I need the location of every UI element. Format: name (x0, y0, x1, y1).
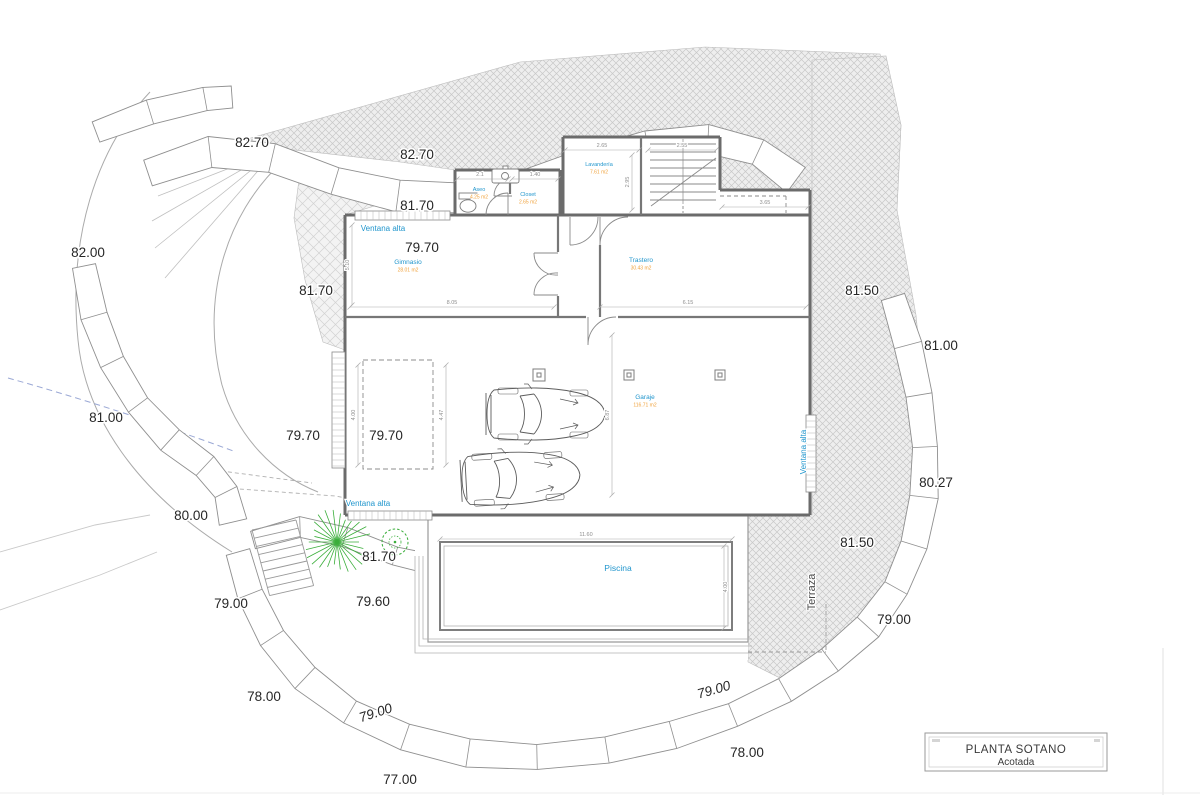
dimension-label: 4.47 (439, 410, 445, 421)
note-terraza: Terraza (806, 573, 818, 611)
room-name-label: Aseo (473, 187, 486, 193)
dimension-label: 4.00 (351, 410, 357, 421)
elevation-label: 82.00 (71, 245, 105, 260)
stone-wall (92, 86, 233, 142)
dimension-label: 6.87 (605, 410, 611, 421)
room-name-label: Closet (520, 192, 536, 198)
elevation-label: 82.70 (235, 135, 269, 150)
elevation-label: 79.70 (369, 428, 403, 443)
dimension-label: 11.60 (579, 532, 592, 538)
elevation-label: 79.60 (356, 594, 390, 609)
high-window-strip (332, 352, 345, 468)
dimension-label: 5.10 (345, 260, 351, 271)
dimension-label: 3.65 (760, 200, 771, 206)
dimension-label: 1.40 (530, 172, 541, 178)
elevation-label: 77.00 (383, 772, 417, 787)
stair-tread (270, 586, 314, 596)
dimension-label: 2.55 (677, 143, 688, 149)
room-area-label: 30.43 m2 (631, 266, 652, 272)
room-area-label: 7.61 m2 (590, 170, 608, 176)
elevation-label: 79.00 (695, 678, 732, 702)
elevation-label: 80.27 (919, 475, 953, 490)
dimension-label: 2.1 (476, 172, 484, 178)
elevation-label: 81.00 (924, 338, 958, 353)
dimension-label: 6.15 (683, 300, 694, 306)
note-ventana-alta: Ventana alta (361, 224, 406, 233)
elevation-label: 81.00 (89, 410, 123, 425)
room-area-label: 28.01 m2 (398, 268, 419, 274)
stair-tread (267, 577, 311, 587)
room-name-label: Trastero (629, 257, 653, 264)
elevation-label: 81.70 (299, 283, 333, 298)
title-block: PLANTA SOTANO Acotada (0, 648, 1200, 795)
elevation-label: 78.00 (730, 745, 764, 760)
stone-wall (73, 264, 247, 526)
elevation-label: 81.50 (840, 535, 874, 550)
elevation-label: 80.00 (174, 508, 208, 523)
elevation-label: 81.50 (845, 283, 879, 298)
elevation-label: 78.00 (247, 689, 281, 704)
titleblock-subtitle: Acotada (998, 757, 1035, 768)
elevation-label: 79.00 (877, 612, 911, 627)
contour-line (0, 552, 157, 610)
elevation-label: 81.70 (400, 198, 434, 213)
sink-icon (492, 166, 519, 183)
stair-tread (261, 553, 305, 563)
titleblock-title: PLANTA SOTANO (966, 744, 1067, 756)
note-ventana-alta: Ventana alta (346, 499, 391, 508)
elevation-label: 79.00 (214, 596, 248, 611)
contour-line (0, 515, 150, 552)
room-area-label: 116.71 m2 (633, 403, 656, 409)
dimension-label: 4.00 (723, 582, 729, 593)
elevation-label: 81.70 (362, 549, 396, 564)
room-name-label: Garaje (635, 394, 655, 401)
elevation-label: 79.70 (286, 428, 320, 443)
dimension-label: 2.95 (625, 177, 631, 188)
elevation-label: 79.70 (405, 240, 439, 255)
stair-tread (263, 561, 307, 571)
room-area-label: 2.65 m2 (519, 200, 537, 206)
stone-joint (537, 745, 538, 770)
room-name-label: Lavandería (585, 162, 613, 168)
floor-plan-canvas: 82.7082.7082.0081.7081.7079.7081.5081.00… (0, 0, 1200, 800)
dimension-label: 8.05 (447, 300, 458, 306)
room-area-label: 4.25 m2 (470, 195, 488, 201)
note-ventana-alta: Ventana alta (799, 429, 808, 474)
stair-tread (265, 569, 309, 579)
elevation-label: 82.70 (400, 147, 434, 162)
dimension-label: 2.65 (597, 143, 608, 149)
room-name-label: Piscina (604, 563, 632, 573)
room-name-label: Gimnasio (394, 259, 422, 266)
